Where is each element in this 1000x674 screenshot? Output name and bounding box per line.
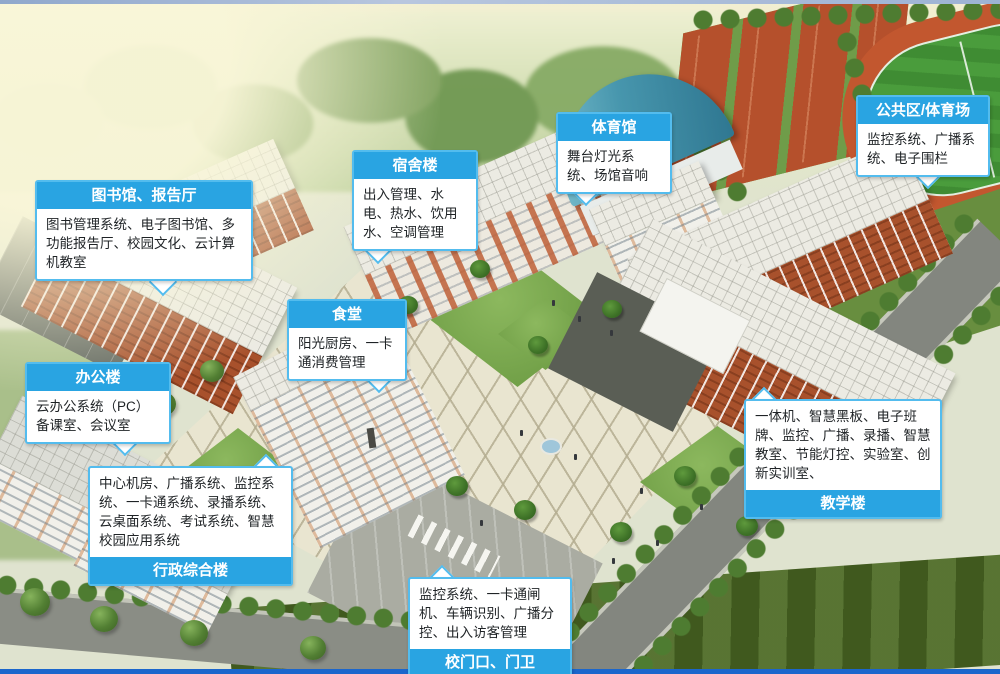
callout-gate: 监控系统、一卡通闸机、车辆识别、广播分控、出入访客管理 校门口、门卫 — [408, 577, 572, 674]
callout-title: 图书馆、报告厅 — [37, 182, 251, 209]
pedestrian — [520, 430, 523, 436]
callout-body: 云办公系统（PC）备课室、会议室 — [27, 391, 169, 442]
pedestrian — [656, 540, 659, 546]
palm-tree — [602, 300, 622, 318]
pedestrian — [480, 520, 483, 526]
callout-public-stadium: 公共区/体育场 监控系统、广播系统、电子围栏 — [856, 95, 990, 177]
pedestrian — [612, 558, 615, 564]
tree — [200, 360, 224, 382]
callout-title: 办公楼 — [27, 364, 169, 391]
pedestrian — [552, 300, 555, 306]
pedestrian — [574, 454, 577, 460]
callout-title: 体育馆 — [558, 114, 670, 141]
callout-title: 校门口、门卫 — [410, 649, 570, 674]
callout-body: 监控系统、一卡通闸机、车辆识别、广播分控、出入访客管理 — [410, 579, 570, 649]
palm-tree — [446, 476, 468, 496]
callout-gymnasium: 体育馆 舞台灯光系统、场馆音响 — [556, 112, 672, 194]
callout-body: 一体机、智慧黑板、电子班牌、监控、广播、录播、智慧教室、节能灯控、实验室、创新实… — [746, 401, 940, 490]
callout-canteen: 食堂 阳光厨房、一卡通消费管理 — [287, 299, 407, 381]
callout-title: 教学楼 — [746, 490, 940, 517]
pedestrian — [578, 316, 581, 322]
palm-tree — [470, 260, 490, 278]
palm-tree — [528, 336, 548, 354]
top-border-line — [0, 0, 1000, 4]
palm-tree — [674, 466, 696, 486]
callout-body: 阳光厨房、一卡通消费管理 — [289, 328, 405, 379]
campus-aerial-rendering: 图书馆、报告厅 图书管理系统、电子图书馆、多功能报告厅、校园文化、云计算机教室 … — [0, 0, 1000, 674]
callout-title: 公共区/体育场 — [858, 97, 988, 124]
callout-title: 行政综合楼 — [90, 557, 291, 584]
callout-body: 出入管理、水电、热水、饮用水、空调管理 — [354, 179, 476, 249]
callout-body: 监控系统、广播系统、电子围栏 — [858, 124, 988, 175]
callout-admin-complex: 中心机房、广播系统、监控系统、一卡通系统、录播系统、云桌面系统、考试系统、智慧校… — [88, 466, 293, 586]
callout-dormitory: 宿舍楼 出入管理、水电、热水、饮用水、空调管理 — [352, 150, 478, 251]
fountain — [540, 438, 562, 455]
tree — [90, 606, 118, 632]
palm-tree — [736, 516, 758, 536]
callout-office: 办公楼 云办公系统（PC）备课室、会议室 — [25, 362, 171, 444]
tree — [300, 636, 326, 660]
callout-body: 舞台灯光系统、场馆音响 — [558, 141, 670, 192]
callout-library: 图书馆、报告厅 图书管理系统、电子图书馆、多功能报告厅、校园文化、云计算机教室 — [35, 180, 253, 281]
palm-tree — [514, 500, 536, 520]
tree — [20, 588, 50, 616]
callout-teaching: 一体机、智慧黑板、电子班牌、监控、广播、录播、智慧教室、节能灯控、实验室、创新实… — [744, 399, 942, 519]
pedestrian — [610, 330, 613, 336]
callout-body: 图书管理系统、电子图书馆、多功能报告厅、校园文化、云计算机教室 — [37, 209, 251, 279]
callout-title: 食堂 — [289, 301, 405, 328]
tree — [180, 620, 208, 646]
pedestrian — [700, 504, 703, 510]
callout-title: 宿舍楼 — [354, 152, 476, 179]
pedestrian — [640, 488, 643, 494]
callout-body: 中心机房、广播系统、监控系统、一卡通系统、录播系统、云桌面系统、考试系统、智慧校… — [90, 468, 291, 557]
palm-tree — [610, 522, 632, 542]
